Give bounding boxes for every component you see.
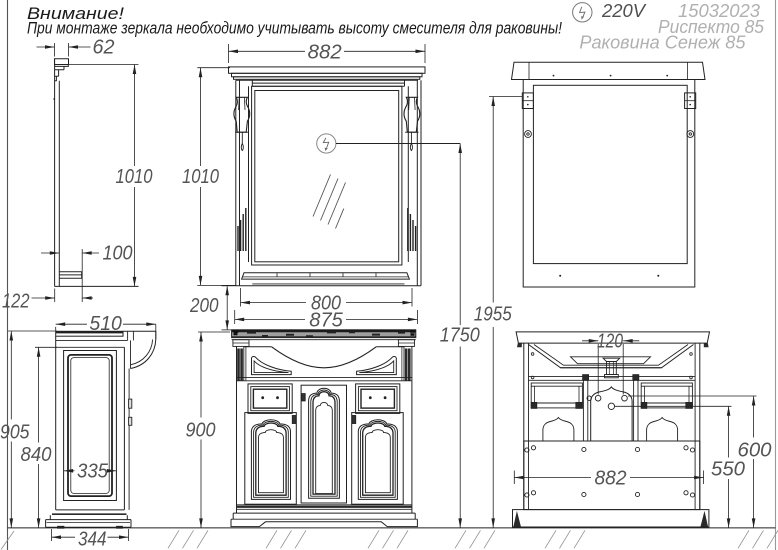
- svg-text:335: 335: [77, 460, 109, 482]
- svg-text:62: 62: [93, 37, 115, 59]
- svg-text:882: 882: [595, 468, 627, 490]
- svg-text:1010: 1010: [116, 166, 153, 188]
- svg-text:550: 550: [711, 459, 745, 481]
- svg-text:882: 882: [308, 42, 342, 64]
- svg-text:При монтаже зеркала необходимо: При монтаже зеркала необходимо учитывать…: [27, 20, 562, 38]
- svg-text:510: 510: [89, 313, 122, 335]
- svg-text:1010: 1010: [182, 166, 219, 188]
- svg-text:875: 875: [309, 310, 343, 332]
- svg-text:122: 122: [2, 291, 30, 313]
- svg-text:220V: 220V: [601, 1, 647, 21]
- svg-text:840: 840: [21, 444, 52, 466]
- svg-text:1955: 1955: [474, 304, 513, 326]
- svg-text:120: 120: [597, 331, 623, 353]
- svg-text:344: 344: [78, 528, 107, 550]
- svg-text:900: 900: [186, 420, 216, 442]
- svg-text:600: 600: [738, 440, 772, 462]
- svg-text:Раковина Сенеж 85: Раковина Сенеж 85: [579, 32, 746, 52]
- svg-text:1750: 1750: [440, 325, 480, 347]
- svg-text:100: 100: [103, 243, 133, 265]
- svg-text:200: 200: [189, 295, 218, 317]
- svg-text:905: 905: [0, 422, 30, 444]
